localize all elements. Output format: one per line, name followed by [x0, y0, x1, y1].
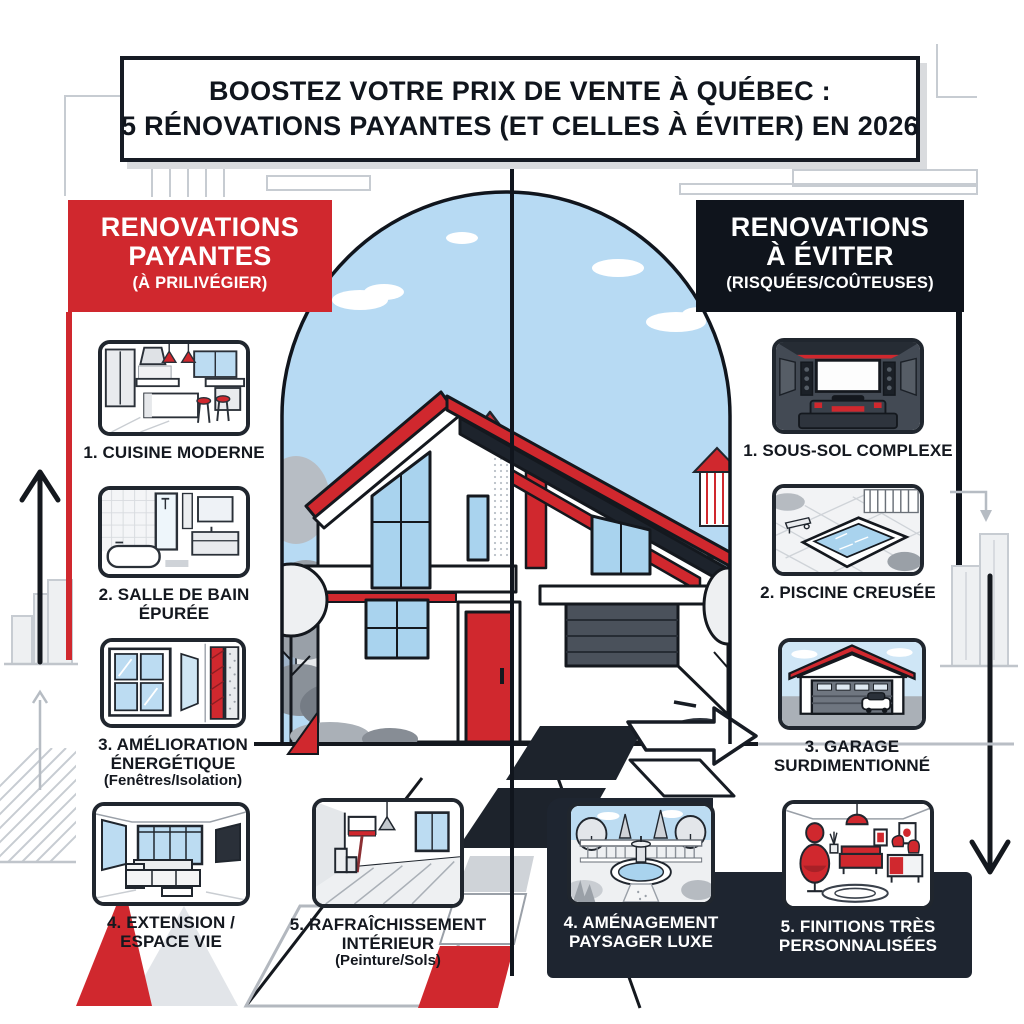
list-item-basement: 1. SOUS-SOL COMPLEXE [772, 338, 924, 434]
small-gray-elbow-arrow-icon [950, 492, 986, 510]
list-item-kitchen: 1. CUISINE MODERNE [98, 340, 250, 436]
item-label: 2. SALLE DE BAIN ÉPURÉE [87, 585, 262, 623]
left-header-line1: RENOVATIONS [68, 213, 332, 242]
title-banner: BOOSTEZ VOTRE PRIX DE VENTE À QUÉBEC : 5… [120, 56, 920, 162]
list-item-finishes: 5. FINITIONS TRÈS PERSONNALISÉES [782, 800, 934, 910]
item-label: 4. EXTENSION / ESPACE VIE [86, 913, 256, 951]
item-label: 5. FINITIONS TRÈS PERSONNALISÉES [763, 917, 953, 955]
custom-finishes-illustration [782, 800, 934, 910]
left-header-subtitle: (À PRILIVÉGIER) [68, 274, 332, 293]
garage-illustration [778, 638, 926, 730]
right-header-subtitle: (RISQUÉES/COÛTEUSES) [696, 274, 964, 293]
window-insulation-illustration [100, 638, 246, 728]
list-item-refresh: 5. RAFRAÎCHISSEMENT INTÉRIEUR (Peinture/… [312, 798, 464, 908]
item-label: 5. RAFRAÎCHISSEMENT INTÉRIEUR (Peinture/… [286, 915, 491, 970]
small-gray-up-arrow-icon [33, 692, 47, 790]
right-header-line1: RENOVATIONS [696, 213, 964, 242]
left-header-line2: PAYANTES [68, 242, 332, 271]
list-item-extension: 4. EXTENSION / ESPACE VIE [92, 802, 250, 906]
kitchen-illustration [98, 340, 250, 436]
list-item-bathroom: 2. SALLE DE BAIN ÉPURÉE [98, 486, 250, 578]
item-label: 3. AMÉLIORATION ÉNERGÉTIQUE (Fenêtres/Is… [81, 735, 266, 790]
interior-paint-illustration [312, 798, 464, 908]
bathroom-illustration [98, 486, 250, 578]
pool-illustration [772, 484, 924, 576]
item-label: 3. GARAGE SURDIMENTIONNÉ [752, 737, 952, 775]
item-label: 1. CUISINE MODERNE [74, 443, 274, 462]
infographic-root: BOOSTEZ VOTRE PRIX DE VENTE À QUÉBEC : 5… [0, 0, 1024, 1024]
list-item-garage: 3. GARAGE SURDIMENTIONNÉ [778, 638, 926, 730]
list-item-landscaping: 4. AMÉNAGEMENT PAYSAGER LUXE [567, 802, 715, 906]
title-line-2: 5 RÉNOVATIONS PAYANTES (ET CELLES À ÉVIT… [121, 109, 919, 144]
landscaping-illustration [567, 802, 715, 906]
right-header-line2: À ÉVITER [696, 242, 964, 271]
left-column-header: RENOVATIONS PAYANTES (À PRILIVÉGIER) [68, 200, 332, 312]
item-label: 1. SOUS-SOL COMPLEXE [741, 441, 956, 460]
list-item-pool: 2. PISCINE CREUSÉE [772, 484, 924, 576]
title-line-1: BOOSTEZ VOTRE PRIX DE VENTE À QUÉBEC : [209, 74, 831, 109]
home-theater-illustration [772, 338, 924, 434]
right-column-header: RENOVATIONS À ÉVITER (RISQUÉES/COÛTEUSES… [696, 200, 964, 312]
living-space-illustration [92, 802, 250, 906]
red-accent-strip [66, 312, 72, 660]
center-divider-line [510, 168, 514, 976]
item-label: 2. PISCINE CREUSÉE [743, 583, 953, 602]
item-label: 4. AMÉNAGEMENT PAYSAGER LUXE [554, 913, 729, 951]
list-item-energy: 3. AMÉLIORATION ÉNERGÉTIQUE (Fenêtres/Is… [100, 638, 246, 728]
